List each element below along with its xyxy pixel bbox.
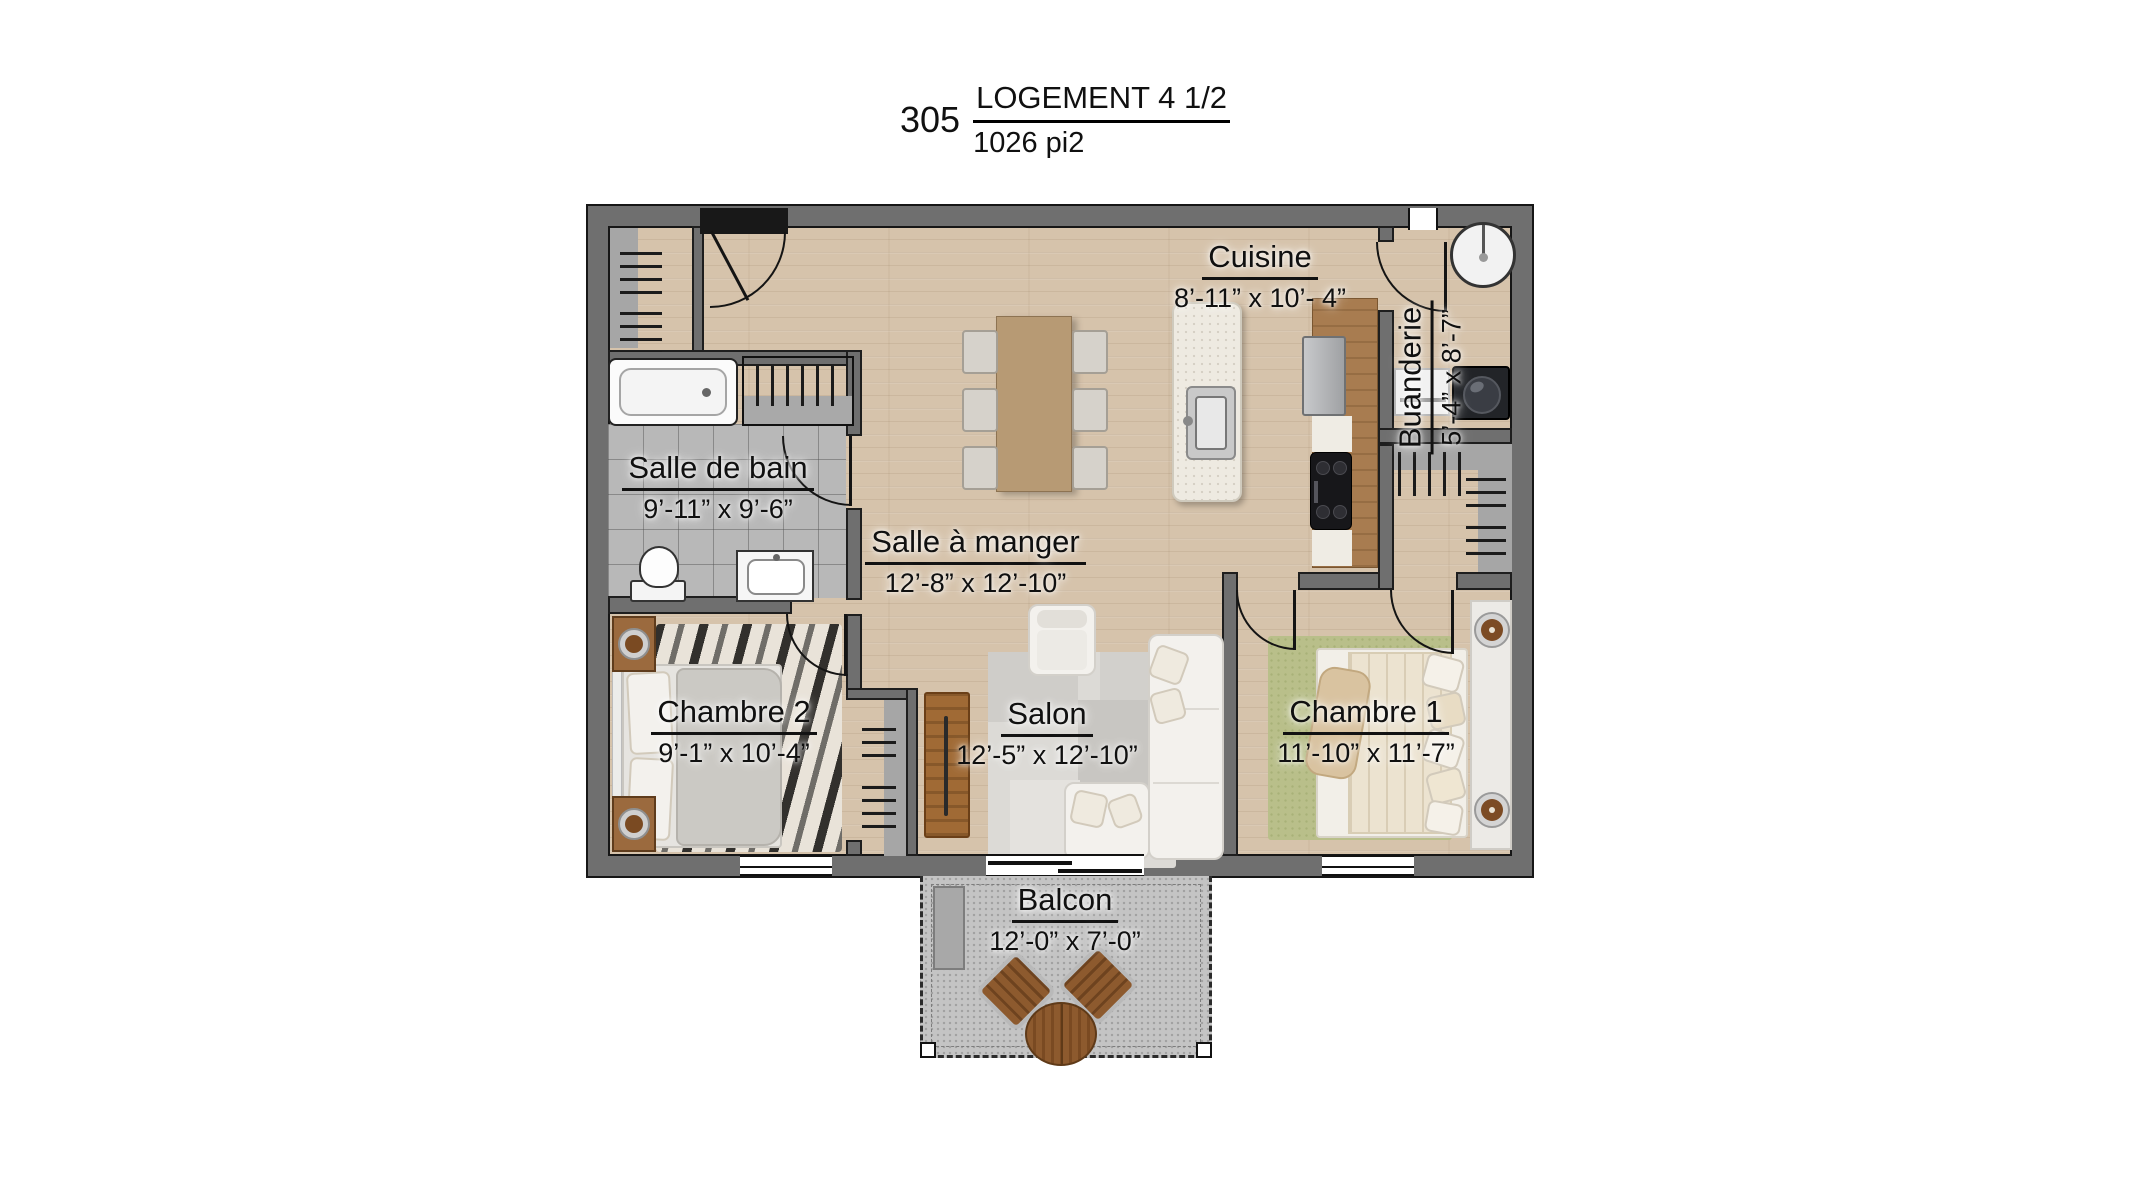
unit-title-column: LOGEMENT 4 1/2 1026 pi2 bbox=[973, 80, 1230, 160]
unit-area: 1026 pi2 bbox=[973, 123, 1230, 160]
bathroom-faucet bbox=[773, 554, 780, 561]
wall-walkin-left bbox=[1378, 444, 1394, 590]
wall-mid-closet-right bbox=[906, 688, 918, 856]
balcony-table bbox=[1025, 1002, 1097, 1066]
mid-closet-back bbox=[884, 700, 906, 856]
bathroom-door-leaf bbox=[849, 436, 852, 506]
linen-closet-rods-icon bbox=[756, 366, 846, 406]
room-label-balcon: Balcon 12’-0” x 7’-0” bbox=[954, 884, 1176, 955]
floor-plan: 305 LOGEMENT 4 1/2 1026 pi2 bbox=[0, 0, 2133, 1200]
corridor-opening bbox=[1408, 208, 1438, 230]
plan-title: 305 LOGEMENT 4 1/2 1026 pi2 bbox=[900, 80, 1230, 160]
dining-chair bbox=[962, 388, 998, 432]
room-name: Balcon bbox=[1012, 884, 1119, 923]
room-dimensions: 5’-4” x 8’-7” bbox=[1437, 267, 1465, 487]
wall-chambre2-right-lower bbox=[846, 840, 862, 856]
room-dimensions: 12’-5” x 12’-10” bbox=[936, 741, 1158, 769]
room-label-salon: Salon 12’-5” x 12’-10” bbox=[936, 698, 1158, 769]
room-dimensions: 9’-11” x 9’-6” bbox=[598, 495, 838, 523]
dining-chair bbox=[1072, 446, 1108, 490]
dining-chair bbox=[1072, 330, 1108, 374]
room-label-buanderie: Buanderie 5’-4” x 8’-7” bbox=[1395, 267, 1466, 487]
entry-closet-shelves-icon bbox=[620, 312, 662, 352]
cooktop bbox=[1310, 452, 1352, 530]
chambre1-pillow bbox=[1423, 799, 1464, 837]
unit-number: 305 bbox=[900, 99, 960, 141]
dining-chair bbox=[962, 330, 998, 374]
chambre1-window bbox=[1322, 855, 1414, 876]
wall-chambre1-top-b bbox=[1456, 572, 1512, 590]
room-name: Salle de bain bbox=[622, 452, 813, 491]
linen-closet bbox=[742, 356, 854, 426]
bathroom-sink bbox=[747, 559, 805, 595]
room-dimensions: 9’-1” x 10’-4” bbox=[624, 739, 844, 767]
chambre2-window bbox=[740, 855, 832, 876]
sofa-pillow bbox=[1069, 789, 1109, 829]
dining-table bbox=[996, 316, 1072, 492]
fridge bbox=[1302, 336, 1346, 416]
balcony-post bbox=[1196, 1042, 1212, 1058]
island-sink bbox=[1186, 386, 1236, 460]
room-label-chambre-1: Chambre 1 11’-10” x 11’-7” bbox=[1256, 696, 1476, 767]
room-name: Salon bbox=[1001, 698, 1092, 737]
chambre2-lamp bbox=[618, 628, 650, 660]
unit-type: LOGEMENT 4 1/2 bbox=[973, 80, 1230, 123]
entry-door-mat bbox=[700, 208, 788, 234]
counter-top-segment bbox=[1312, 416, 1352, 452]
chambre2-lamp bbox=[618, 808, 650, 840]
wall-entry-closet bbox=[692, 226, 704, 354]
room-dimensions: 11’-10” x 11’-7” bbox=[1256, 739, 1476, 767]
chambre1-lamp bbox=[1474, 612, 1510, 648]
walkin-shelves-icon bbox=[1466, 526, 1506, 564]
armchair bbox=[1028, 604, 1096, 676]
wall-chambre1-left bbox=[1222, 572, 1238, 856]
chambre1-door-leaf bbox=[1293, 590, 1296, 650]
kitchen-island bbox=[1172, 302, 1242, 502]
walkin-shelves-icon bbox=[1466, 478, 1506, 512]
bathtub-drain bbox=[702, 388, 711, 397]
room-dimensions: 8’-11” x 10’- 4” bbox=[1150, 284, 1370, 312]
wall-laundry-left-stub bbox=[1378, 226, 1394, 242]
counter-top-segment bbox=[1312, 530, 1352, 566]
patio-sliding-door bbox=[986, 854, 1144, 877]
mid-closet-shelves-icon bbox=[862, 728, 896, 758]
room-name: Salle à manger bbox=[865, 526, 1086, 565]
walkin-door-leaf bbox=[1451, 590, 1454, 654]
chambre1-lamp bbox=[1474, 792, 1510, 828]
room-dimensions: 12’-0” x 7’-0” bbox=[954, 927, 1176, 955]
chambre2-door-leaf bbox=[844, 614, 847, 676]
dining-chair bbox=[1072, 388, 1108, 432]
toilet-bowl bbox=[639, 546, 679, 588]
island-faucet bbox=[1183, 416, 1193, 426]
room-label-chambre-2: Chambre 2 9’-1” x 10’-4” bbox=[624, 696, 844, 767]
room-dimensions: 12’-8” x 12’-10” bbox=[858, 569, 1093, 597]
entry-closet-shelves-icon bbox=[620, 252, 662, 294]
room-label-salle-de-bain: Salle de bain 9’-11” x 9’-6” bbox=[598, 452, 838, 523]
bathtub bbox=[608, 358, 738, 426]
dining-chair bbox=[962, 446, 998, 490]
mid-closet-shelves-icon bbox=[862, 786, 896, 830]
room-label-salle-a-manger: Salle à manger 12’-8” x 12’-10” bbox=[858, 526, 1093, 597]
balcony-post bbox=[920, 1042, 936, 1058]
bathroom-vanity bbox=[736, 550, 814, 602]
room-name: Chambre 2 bbox=[651, 696, 816, 735]
room-name: Cuisine bbox=[1202, 241, 1317, 280]
room-label-cuisine: Cuisine 8’-11” x 10’- 4” bbox=[1150, 241, 1370, 312]
room-name: Buanderie bbox=[1395, 301, 1434, 454]
room-name: Chambre 1 bbox=[1283, 696, 1448, 735]
